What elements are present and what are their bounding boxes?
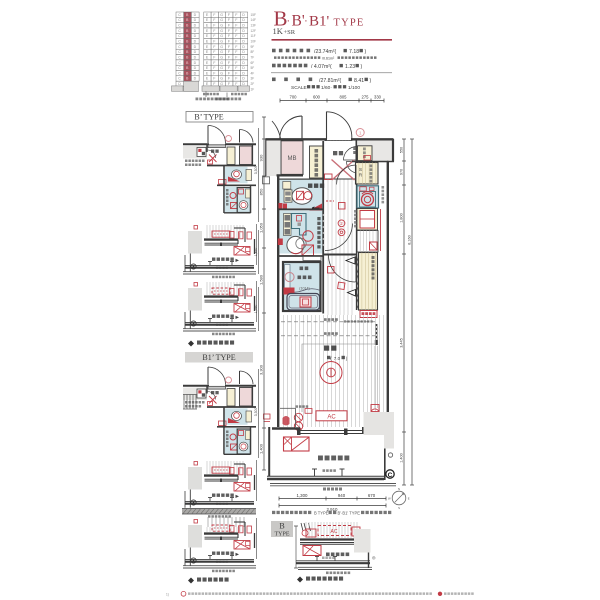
svg-text:805: 805	[340, 95, 348, 100]
svg-text:N: N	[398, 487, 400, 491]
svg-text:12F: 12F	[251, 29, 257, 33]
svg-text:1.23: 1.23	[345, 64, 355, 70]
svg-text:B’ TYPE: B’ TYPE	[194, 113, 223, 122]
svg-text:G: G	[220, 56, 223, 60]
svg-text:C: C	[178, 71, 181, 75]
svg-text:/23.74m²(: /23.74m²(	[314, 49, 336, 55]
svg-text:C: C	[178, 77, 181, 81]
svg-text:D: D	[194, 61, 197, 65]
svg-text:D: D	[242, 61, 245, 65]
svg-text:1,300: 1,300	[297, 493, 309, 498]
svg-text:6F: 6F	[251, 61, 255, 65]
svg-text:D: D	[242, 45, 245, 49]
svg-text:1K: 1K	[273, 26, 284, 36]
svg-text:B1': B1'	[309, 14, 330, 30]
svg-text:SCALE: SCALE	[291, 85, 307, 91]
svg-text:850: 850	[259, 188, 264, 195]
svg-text:W: W	[388, 497, 391, 501]
svg-text:D: D	[242, 13, 245, 17]
svg-text:B1’ TYPE: B1’ TYPE	[202, 353, 235, 362]
svg-text:G: G	[220, 50, 223, 54]
svg-text:600: 600	[313, 95, 321, 100]
svg-text:): )	[370, 78, 372, 84]
svg-text:/0.61m²: /0.61m²	[322, 57, 335, 61]
svg-text:AC: AC	[327, 414, 336, 420]
svg-text:3,300: 3,300	[259, 364, 264, 375]
svg-text:7F: 7F	[251, 56, 255, 60]
svg-text:/ 4.07m²(: / 4.07m²(	[311, 64, 332, 70]
svg-text:15F: 15F	[251, 13, 257, 17]
svg-text:G: G	[220, 34, 223, 38]
svg-text:C: C	[178, 66, 181, 70]
svg-text:14F: 14F	[251, 18, 257, 22]
svg-text:C: C	[178, 56, 181, 60]
svg-text:1,800: 1,800	[400, 213, 404, 223]
svg-text:D: D	[242, 56, 245, 60]
svg-text:D: D	[242, 71, 245, 75]
svg-text:·: ·	[304, 17, 307, 28]
svg-text:1): 1)	[166, 593, 169, 597]
svg-text:1,450: 1,450	[254, 248, 258, 257]
svg-text:5F: 5F	[251, 66, 255, 70]
svg-text:): )	[361, 64, 363, 70]
svg-text:D: D	[242, 82, 245, 86]
svg-text:G: G	[220, 40, 223, 44]
svg-text:3,300: 3,300	[254, 408, 258, 417]
svg-text:G: G	[220, 71, 223, 75]
svg-text:S: S	[359, 167, 362, 173]
svg-text:C: C	[178, 40, 181, 44]
svg-text:13F: 13F	[251, 24, 257, 28]
svg-text:1,050: 1,050	[259, 222, 264, 233]
svg-text:1,580: 1,580	[259, 274, 264, 285]
svg-text:C: C	[178, 50, 181, 54]
svg-text:670: 670	[368, 493, 376, 498]
svg-text:B TYPE: B TYPE	[314, 510, 329, 515]
svg-text:D: D	[194, 56, 197, 60]
svg-text:C: C	[388, 472, 393, 479]
svg-text:S: S	[398, 506, 400, 510]
svg-text:9F: 9F	[251, 45, 255, 49]
svg-text:D: D	[194, 71, 197, 75]
svg-text:330: 330	[374, 95, 382, 100]
svg-text:TYPE: TYPE	[334, 18, 365, 29]
svg-text:D: D	[194, 13, 197, 17]
svg-text:2F: 2F	[251, 82, 255, 86]
svg-text:1: 1	[359, 130, 362, 136]
svg-text:275: 275	[362, 95, 370, 100]
svg-text:C: C	[178, 61, 181, 65]
svg-text:D: D	[194, 45, 197, 49]
svg-text:/27.81m²(: /27.81m²(	[319, 78, 341, 84]
svg-text:1/60·: 1/60·	[321, 85, 332, 91]
svg-text:G: G	[220, 29, 223, 33]
svg-text:940: 940	[338, 493, 346, 498]
svg-text:C: C	[178, 18, 181, 22]
svg-text:550: 550	[400, 147, 404, 153]
svg-text:D: D	[178, 82, 181, 86]
svg-text:8.41: 8.41	[354, 78, 364, 84]
svg-text:G: G	[220, 61, 223, 65]
svg-text:B': B'	[292, 13, 305, 30]
svg-text:◎: ◎	[372, 555, 376, 560]
svg-text:+SR: +SR	[284, 29, 296, 36]
svg-text:8F: 8F	[251, 50, 255, 54]
svg-text:1F: 1F	[251, 87, 255, 91]
svg-text:G: G	[220, 77, 223, 81]
svg-text:D: D	[194, 18, 197, 22]
svg-text:D: D	[242, 77, 245, 81]
svg-text:1,400: 1,400	[400, 453, 404, 463]
svg-text:TYPE: TYPE	[275, 532, 290, 538]
svg-text:D: D	[242, 29, 245, 33]
svg-text:): )	[365, 49, 367, 55]
svg-text:D: D	[194, 50, 197, 54]
svg-text:G: G	[220, 82, 223, 86]
svg-text:D: D	[242, 66, 245, 70]
svg-text:D: D	[194, 66, 197, 70]
svg-text:B'·B1' TYPE: B'·B1' TYPE	[338, 510, 361, 515]
svg-text:700: 700	[290, 95, 298, 100]
svg-text:8,160: 8,160	[408, 235, 412, 245]
svg-text:C: C	[178, 45, 181, 49]
svg-text:R: R	[359, 173, 363, 179]
svg-text:11F: 11F	[251, 34, 256, 38]
svg-text:1,400: 1,400	[259, 443, 264, 454]
svg-text:D: D	[242, 34, 245, 38]
svg-text:7.0: 7.0	[334, 356, 341, 361]
svg-text:10F: 10F	[251, 40, 257, 44]
svg-text:7.18: 7.18	[349, 49, 359, 55]
svg-text:3,445: 3,445	[400, 338, 404, 348]
svg-text:D: D	[242, 24, 245, 28]
svg-text:D: D	[194, 24, 197, 28]
svg-text:4F: 4F	[251, 71, 255, 75]
svg-text:G: G	[220, 13, 223, 17]
svg-text:3,300: 3,300	[254, 166, 258, 175]
svg-text:D: D	[194, 77, 197, 81]
svg-text:G: G	[220, 66, 223, 70]
svg-text:D: D	[194, 40, 197, 44]
svg-text:D: D	[242, 50, 245, 54]
svg-text:G: G	[220, 45, 223, 49]
svg-text:G: G	[220, 24, 223, 28]
svg-text:970: 970	[400, 169, 404, 175]
svg-text:B: B	[279, 522, 284, 531]
svg-text:D: D	[194, 34, 197, 38]
svg-text:G: G	[220, 18, 223, 22]
svg-text:C: C	[178, 13, 181, 17]
svg-text:E: E	[408, 497, 410, 501]
svg-text:MB: MB	[288, 156, 297, 162]
svg-text:1/100: 1/100	[348, 85, 360, 91]
svg-text:1,590: 1,590	[254, 305, 258, 314]
svg-text:D: D	[242, 40, 245, 44]
svg-text:3F: 3F	[251, 77, 255, 81]
svg-text:930: 930	[259, 154, 264, 161]
svg-text:C: C	[178, 34, 181, 38]
svg-text:D: D	[242, 18, 245, 22]
svg-text:·: ·	[287, 17, 290, 28]
svg-text:C: C	[178, 29, 181, 33]
svg-text:D: D	[194, 29, 197, 33]
svg-text:AC: AC	[331, 529, 338, 535]
svg-text:C: C	[178, 24, 181, 28]
